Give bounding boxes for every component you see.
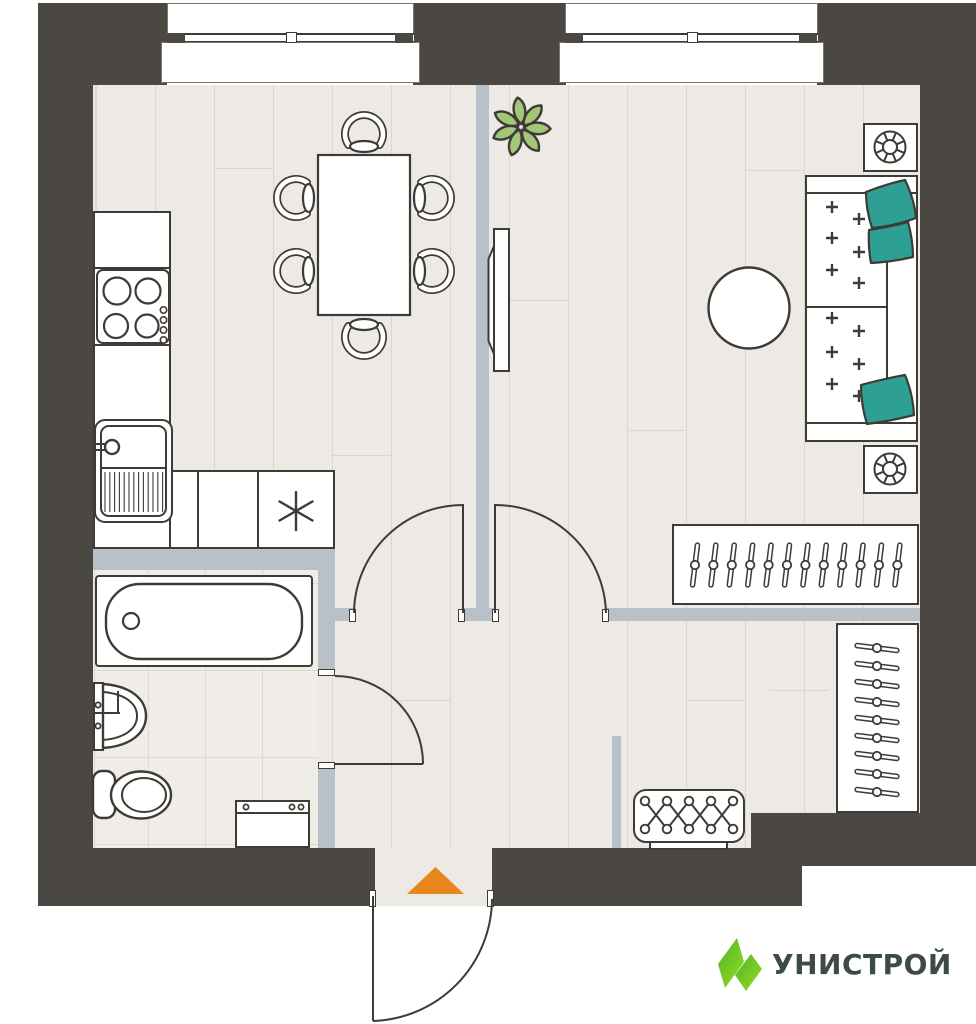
door-jamb [318, 762, 335, 769]
wall-bathroom-top [93, 548, 335, 570]
wall-hallway-segment [461, 608, 496, 621]
wall-bathroom-right [318, 570, 335, 670]
nightstand-top [863, 123, 918, 172]
plank-joint [686, 700, 745, 701]
bed-mattress-split [807, 306, 888, 308]
window-jamb [565, 33, 583, 43]
developer-logo: УНИСТРОЙ [706, 936, 952, 994]
wall-bedroom-divider [476, 85, 489, 613]
bench-base [649, 841, 728, 850]
plank-joint [509, 300, 568, 301]
window-right-outer [565, 3, 818, 34]
window-left-mullion [286, 32, 297, 43]
entrance-threshold [375, 848, 492, 906]
bathtub [95, 575, 313, 667]
double-bed [805, 175, 918, 442]
bed-frame-line [807, 192, 916, 194]
kitchen-sink-unit [94, 419, 173, 523]
door-jamb [318, 669, 335, 676]
wall-left [38, 3, 93, 906]
door-jamb [492, 609, 499, 622]
plank-joint [770, 690, 829, 691]
door-jamb [349, 609, 356, 622]
brand-name: УНИСТРОЙ [772, 936, 952, 994]
window-jamb [167, 33, 185, 43]
counter-divider [95, 344, 169, 346]
wall-bottom-step [751, 813, 976, 866]
door-jamb [602, 609, 609, 622]
window-left-outer [167, 3, 414, 34]
plank-joint [391, 700, 450, 701]
wall-hallway-segment [604, 608, 920, 621]
door-swing-icon [373, 896, 492, 1021]
tv [493, 228, 510, 372]
door-jamb [487, 890, 494, 907]
window-jamb [799, 33, 817, 43]
wall-right [920, 3, 976, 866]
nightstand-bottom [863, 445, 918, 494]
unistroy-logo-icon [706, 936, 764, 994]
bed-frame-line [886, 192, 888, 424]
counter-divider [257, 472, 259, 547]
plank-joint [627, 430, 686, 431]
floor-plan-canvas: УНИСТРОЙ [0, 0, 976, 1024]
door-jamb [458, 609, 465, 622]
closet [836, 623, 919, 813]
wall-bathroom-right [318, 769, 335, 848]
door-jamb [369, 890, 376, 907]
plank-joint [745, 170, 804, 171]
window-right-sill [559, 42, 824, 83]
plank-joint [214, 168, 273, 169]
wall-top [413, 3, 566, 85]
counter-divider [197, 472, 199, 547]
wall-stub [612, 736, 621, 848]
window-left-sill [161, 42, 420, 83]
window-jamb [395, 33, 413, 43]
window-right-mullion [687, 32, 698, 43]
stove [96, 269, 170, 344]
bed-frame-line [807, 422, 916, 424]
plank-joint [332, 455, 391, 456]
wardrobe [672, 524, 919, 605]
bench [633, 789, 745, 843]
washing-machine [235, 800, 310, 848]
